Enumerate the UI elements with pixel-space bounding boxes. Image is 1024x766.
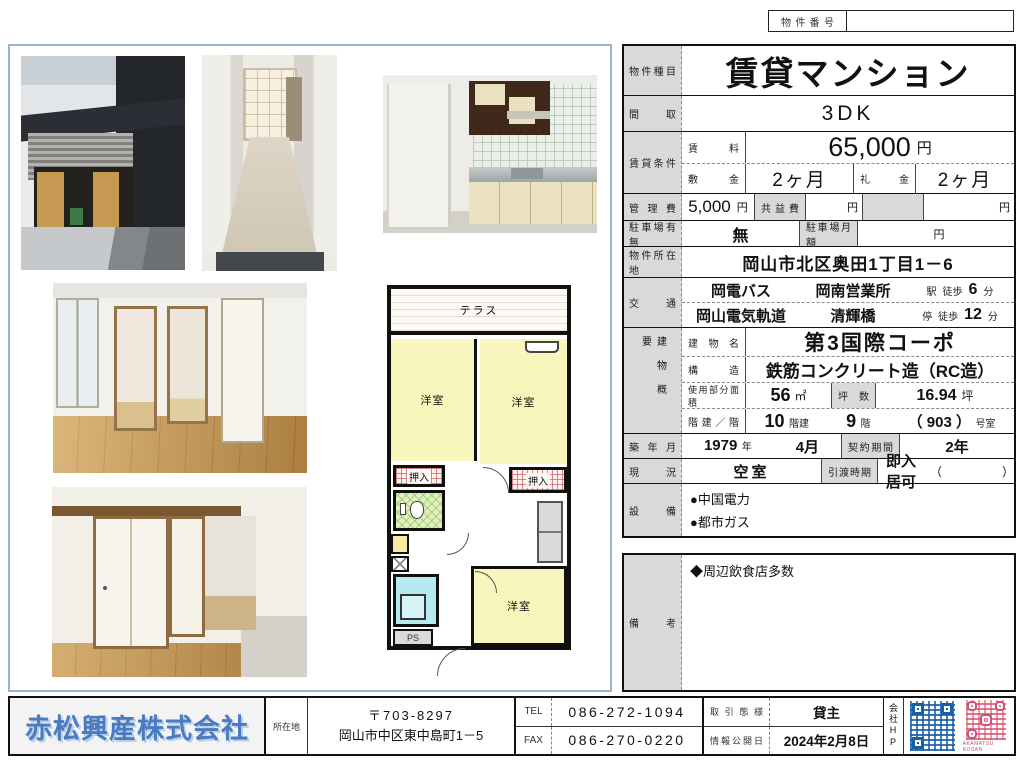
property-number-box: 物件番号: [768, 10, 1014, 32]
tsubo-value: 16.94 坪: [876, 383, 1014, 408]
plan-washer-space: [391, 556, 409, 572]
floors-floor-unit: 階: [861, 419, 871, 430]
floors-room-num: （ 903 ）: [908, 414, 971, 431]
parking-value: 無: [682, 221, 800, 246]
instagram-camera-icon: [980, 714, 992, 726]
remarks-label: 備考: [624, 555, 682, 690]
deal-type-label: 取引態様: [704, 698, 770, 726]
status-value: 空室: [682, 459, 822, 483]
plan-room-label: 洋室: [507, 598, 531, 614]
footer-bar: 赤松興産株式会社 所在地 〒703-8297 岡山市中区東中島町1－5 TEL …: [8, 696, 1016, 756]
tel-row: TEL 086-272-1094: [516, 698, 702, 727]
key-money-value: 2ヶ月: [916, 164, 1014, 193]
management-fee-value: 5,000 円: [682, 194, 754, 220]
floors-total: 10 階建: [765, 411, 809, 432]
floor-area-amount: 56: [770, 385, 790, 406]
floors-room-unit: 号室: [975, 419, 995, 430]
rent-unit: 円: [917, 137, 932, 158]
transport-line-2: 岡山電気軌道: [682, 303, 800, 327]
photo-layer: [511, 168, 543, 179]
transport-line-1: 岡電バス: [682, 278, 800, 302]
transport-minutes-2: 12: [964, 306, 982, 324]
qr-finder-icon: [912, 703, 924, 715]
property-flyer: 物件番号: [0, 0, 1024, 766]
transport-walk-label-2: 徒歩: [938, 308, 958, 323]
floor-area-value: 56 ㎡: [746, 383, 832, 408]
built-year-num: 1979: [704, 437, 737, 454]
status-label: 現況: [624, 459, 682, 483]
property-type-label: 物件種目: [624, 46, 682, 95]
transport-type-1: 駅: [927, 283, 937, 298]
photo-building-entrance: [21, 56, 185, 270]
management-fee-unit: 円: [737, 199, 748, 215]
deal-row: 取引態様 貸主: [704, 698, 883, 727]
row-address: 物件所在地 岡山市北区奥田1丁目1－6: [624, 247, 1014, 278]
row-management-fee: 管理費 5,000 円 共益費 円 円: [624, 194, 1014, 221]
deal-type-value: 貸主: [770, 698, 883, 726]
plan-pipe-space: PS: [393, 629, 433, 646]
floors-floor-num: 9: [846, 411, 856, 431]
handover-label: 引渡時期: [822, 459, 878, 483]
fee-extra-cell: 円: [924, 194, 1014, 220]
floors-label: 階建／階: [682, 409, 746, 433]
structure-label: 構造: [682, 357, 746, 382]
photo-layer: [93, 172, 119, 228]
parking-label: 駐車場有無: [624, 221, 682, 246]
instagram-qr-block: AKAMATSU KOSAN: [963, 700, 1010, 753]
management-fee-amount: 5,000: [688, 197, 731, 217]
company-address-label: 所在地: [266, 698, 308, 754]
publish-date-value: 2024年2月8日: [770, 727, 883, 755]
plan-sink: [391, 534, 409, 554]
photo-living-room: [53, 283, 307, 473]
plan-toilet: [393, 490, 445, 531]
deposit-label: 敷金: [682, 164, 746, 193]
plan-bath: [393, 574, 439, 627]
floors-floor: 9 階: [846, 411, 870, 432]
company-hp-label: 会社HP: [884, 698, 904, 754]
instagram-qr-code: [966, 700, 1006, 740]
building-name-value: 第3国際コーポ: [746, 328, 1014, 356]
address-value: 岡山市北区奥田1丁目1－6: [682, 247, 1014, 277]
photo-layer: [286, 77, 302, 142]
built-value: 1979 年 4月: [682, 434, 842, 458]
plan-entrance-door-arc: [437, 648, 465, 676]
built-label: 築年月: [624, 434, 682, 458]
fee-blank-cell: [862, 194, 924, 220]
equipment-list: ●中国電力 ●都市ガス: [682, 484, 1014, 536]
key-money-label: 礼金: [854, 164, 916, 193]
photo-corridor: [202, 55, 337, 271]
publish-row: 情報公開日 2024年2月8日: [704, 727, 883, 755]
photo-layer: [93, 516, 170, 649]
photo-layer: [53, 283, 307, 298]
row-layout: 間取 3DK: [624, 96, 1014, 132]
row-equipment: 設備 ●中国電力 ●都市ガス: [624, 484, 1014, 536]
tel-value: 086-272-1094: [552, 698, 702, 726]
transport-walk-1: 駅 徒歩 6 分: [906, 278, 1014, 302]
fee-extra-unit: 円: [999, 199, 1010, 215]
plan-door-arc: [483, 467, 509, 493]
floors-total-num: 10: [765, 411, 785, 431]
photo-layer: [37, 172, 63, 228]
photo-kitchen: [383, 75, 597, 233]
fax-value: 086-270-0220: [552, 727, 702, 755]
tsubo-amount: 16.94: [916, 387, 956, 405]
fax-row: FAX 086-270-0220: [516, 727, 702, 755]
photo-layer: [114, 306, 157, 431]
qr-finder-icon: [967, 729, 977, 739]
bathtub-icon: [400, 594, 426, 620]
plan-closet-label: 押入: [407, 469, 431, 484]
floors-total-unit: 階建: [789, 419, 809, 430]
common-fee-value: 円: [806, 194, 862, 220]
plan-window: [525, 341, 559, 353]
transport-walk-2: 停 徒歩 12 分: [906, 303, 1014, 327]
equipment-item: ●中国電力: [690, 488, 1006, 511]
photo-layer: [475, 84, 505, 105]
qr-finder-icon: [995, 701, 1005, 711]
transport-label: 交通: [624, 278, 682, 327]
management-fee-label: 管理費: [624, 194, 682, 220]
plan-closet-right: 押入: [509, 467, 567, 493]
photo-layer: [507, 111, 550, 119]
equipment-item: ●都市ガス: [690, 511, 1006, 534]
tsubo-label: 坪数: [832, 383, 876, 408]
fax-label: FAX: [516, 727, 552, 755]
rent-value: 65,000 円: [746, 132, 1014, 163]
tel-label: TEL: [516, 698, 552, 726]
handover-paren: （ ）: [930, 463, 1014, 480]
photo-layer: [21, 227, 185, 270]
plan-kitchen-counter: [537, 501, 563, 563]
transport-walk-label-1: 徒歩: [943, 283, 963, 298]
photo-layer: [103, 586, 107, 590]
property-details-table: 物件種目 賃貸マンション 間取 3DK 賃貸条件 賃料 65,000 円 敷金 …: [622, 44, 1016, 538]
company-postal: 〒703-8297: [308, 706, 514, 726]
photo-layer: [205, 516, 256, 630]
photo-layer: [53, 416, 307, 473]
plan-closet-label: 押入: [526, 473, 550, 488]
photo-layer: [70, 208, 83, 225]
company-hp-qr-code: [910, 701, 955, 751]
built-year-unit: 年: [742, 442, 752, 453]
photo-gallery: テラス 洋室 洋室 押入 押入 PS 洋室: [8, 44, 612, 692]
transport-unit-1: 分: [983, 283, 993, 298]
qr-finder-icon: [941, 703, 953, 715]
publish-date-label: 情報公開日: [704, 727, 770, 755]
qr-zone: AKAMATSU KOSAN: [904, 698, 1014, 754]
remarks-content: ◆周辺飲食店多数: [682, 555, 1014, 690]
structure-value: 鉄筋コンクリート造（RC造）: [746, 357, 1014, 382]
floors-room: （ 903 ） 号室: [908, 411, 996, 432]
qr-caption: AKAMATSU KOSAN: [963, 741, 1010, 753]
floors-value: 10 階建 9 階 （ 903 ） 号室: [746, 409, 1014, 433]
parking-monthly-value: 円: [858, 221, 1014, 246]
layout-label: 間取: [624, 96, 682, 131]
photo-layer: [52, 506, 241, 516]
property-number-label: 物件番号: [769, 11, 847, 31]
building-overview-label: 建物概要: [624, 328, 682, 433]
row-property-type: 物件種目 賃貸マンション: [624, 46, 1014, 96]
photo-fusuma-room: [52, 487, 307, 677]
common-fee-label: 共益費: [754, 194, 806, 220]
handover-value: 即入居可 （ ）: [878, 459, 1014, 483]
toilet-bowl-icon: [410, 501, 424, 519]
common-fee-unit: 円: [847, 199, 858, 215]
toilet-tank-icon: [400, 503, 406, 515]
rent-amount: 65,000: [828, 132, 911, 163]
transport-minutes-1: 6: [969, 281, 978, 299]
plan-room-label: 洋室: [421, 392, 445, 408]
floor-area-label: 使用部分面積: [682, 383, 746, 408]
plan-closet-left: 押入: [393, 465, 445, 487]
floor-plan: テラス 洋室 洋室 押入 押入 PS 洋室: [387, 285, 571, 650]
qr-finder-icon: [912, 737, 924, 749]
property-number-value: [847, 11, 1013, 31]
plan-terrace-label: テラス: [460, 302, 499, 318]
plan-room-west1: 洋室: [391, 339, 477, 461]
parking-monthly-unit: 円: [934, 226, 945, 242]
tsubo-unit: 坪: [962, 387, 974, 404]
plan-room-label: 洋室: [512, 394, 536, 410]
row-rent-conditions: 賃貸条件 賃料 65,000 円 敷金 2ヶ月 礼金 2ヶ月: [624, 132, 1014, 194]
transport-station-2: 清輝橋: [800, 303, 906, 327]
transport-station-1: 岡南営業所: [800, 278, 906, 302]
plan-ps-label: PS: [407, 633, 419, 643]
floor-area-unit: ㎡: [795, 387, 807, 404]
photo-layer: [216, 252, 324, 271]
plan-room-west2: 洋室: [480, 339, 567, 464]
photo-layer: [387, 84, 451, 226]
row-built: 築年月 1979 年 4月 契約期間 2年: [624, 434, 1014, 459]
address-label: 物件所在地: [624, 247, 682, 277]
building-name-label: 建物名: [682, 328, 746, 356]
property-type-value: 賃貸マンション: [682, 46, 1014, 95]
equipment-label: 設備: [624, 484, 682, 536]
deal-block: 取引態様 貸主 情報公開日 2024年2月8日: [704, 698, 884, 754]
company-address-line: 岡山市中区東中島町1－5: [308, 726, 514, 746]
rent-conditions-label: 賃貸条件: [624, 132, 682, 193]
remarks-item: ◆周辺飲食店多数: [690, 561, 1006, 580]
company-address: 〒703-8297 岡山市中区東中島町1－5: [308, 698, 516, 754]
company-name: 赤松興産株式会社: [10, 698, 266, 754]
plan-door-arc: [447, 533, 469, 555]
row-status: 現況 空室 引渡時期 即入居可 （ ）: [624, 459, 1014, 484]
transport-unit-2: 分: [988, 308, 998, 323]
built-month: 4月: [796, 436, 819, 457]
rent-label: 賃料: [682, 132, 746, 163]
layout-value: 3DK: [682, 96, 1014, 131]
parking-monthly-label: 駐車場月額: [800, 221, 858, 246]
deposit-value: 2ヶ月: [746, 164, 854, 193]
row-building-overview: 建物概要 建物名 第3国際コーポ 構造 鉄筋コンクリート造（RC造） 使用部分面…: [624, 328, 1014, 434]
photo-layer: [56, 298, 99, 408]
row-transport: 交通 岡電バス 岡南営業所 駅 徒歩 6 分 岡山電気軌道 清輝橋: [624, 278, 1014, 328]
photo-layer: [167, 306, 208, 424]
photo-layer: [469, 182, 597, 223]
remarks-table: 備考 ◆周辺飲食店多数: [622, 553, 1016, 692]
photo-layer: [169, 516, 205, 638]
photo-layer: [221, 298, 264, 442]
built-year: 1979 年: [704, 437, 752, 455]
plan-terrace: テラス: [391, 289, 567, 335]
qr-finder-icon: [967, 701, 977, 711]
phone-block: TEL 086-272-1094 FAX 086-270-0220: [516, 698, 704, 754]
transport-type-2: 停: [922, 308, 932, 323]
row-parking: 駐車場有無 無 駐車場月額 円: [624, 221, 1014, 247]
